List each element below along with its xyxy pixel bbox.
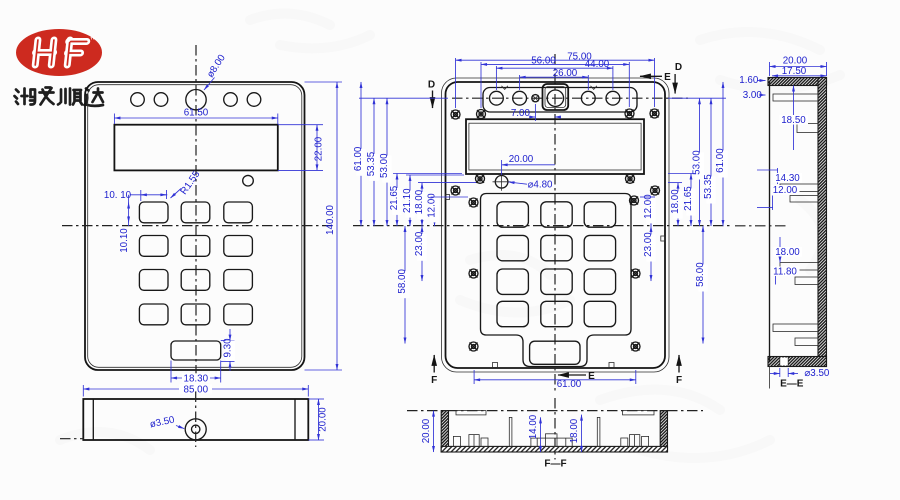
svg-text:53.35: 53.35 [366,151,377,176]
svg-text:53.00: 53.00 [379,153,390,178]
svg-text:20.00: 20.00 [509,154,534,165]
svg-text:58.00: 58.00 [695,262,706,287]
svg-text:20.00: 20.00 [421,418,432,443]
svg-text:21.65: 21.65 [683,186,694,211]
svg-text:58.00: 58.00 [397,268,408,293]
svg-text:23.00: 23.00 [414,231,425,256]
svg-text:18.50: 18.50 [781,115,806,126]
svg-text:10.10: 10.10 [119,228,130,253]
svg-text:18.30: 18.30 [184,374,209,385]
svg-text:53.00: 53.00 [692,150,703,175]
svg-text:3.00: 3.00 [743,90,763,101]
svg-text:™: ™ [90,37,97,44]
svg-text:18.00: 18.00 [414,189,425,214]
svg-text:F: F [676,375,682,386]
svg-text:E—E: E—E [780,379,804,390]
svg-text:61.00: 61.00 [353,146,364,171]
svg-text:12.00: 12.00 [643,194,654,219]
svg-text:61.00: 61.00 [715,148,726,173]
svg-text:75.00: 75.00 [567,51,592,62]
svg-text:⌀3.50: ⌀3.50 [804,368,830,379]
svg-text:14.30: 14.30 [775,173,800,184]
svg-text:9.30: 9.30 [222,338,233,358]
svg-text:D: D [675,62,682,73]
svg-text:10. 10: 10. 10 [104,190,132,201]
svg-text:D: D [428,80,435,91]
svg-text:F: F [431,375,437,386]
svg-text:61.00: 61.00 [557,379,582,390]
svg-text:14.00: 14.00 [528,414,539,439]
svg-text:11.80: 11.80 [773,266,797,277]
svg-text:61.50: 61.50 [184,108,209,119]
svg-text:53.35: 53.35 [703,174,714,199]
svg-text:1.60: 1.60 [739,75,759,86]
svg-text:18.00: 18.00 [569,418,580,443]
svg-text:26.00: 26.00 [553,68,578,79]
svg-text:21.10: 21.10 [402,188,413,213]
svg-text:18.00: 18.00 [775,247,800,258]
svg-text:23.00: 23.00 [643,232,654,257]
svg-text:E: E [588,371,595,382]
svg-text:20.00: 20.00 [318,407,329,432]
svg-text:21.65: 21.65 [389,185,400,210]
svg-text:F—F: F—F [544,459,566,470]
svg-text:7.00: 7.00 [511,108,531,119]
svg-text:E: E [664,72,671,83]
svg-text:18.00: 18.00 [670,189,681,214]
svg-text:⌀4.80: ⌀4.80 [528,180,554,191]
svg-text:22.00: 22.00 [314,136,325,161]
svg-text:140.00: 140.00 [325,204,336,235]
svg-text:12.00: 12.00 [773,185,798,196]
svg-text:56.00: 56.00 [531,56,556,67]
svg-text:12.00: 12.00 [427,193,438,218]
svg-text:17.50: 17.50 [782,66,807,77]
